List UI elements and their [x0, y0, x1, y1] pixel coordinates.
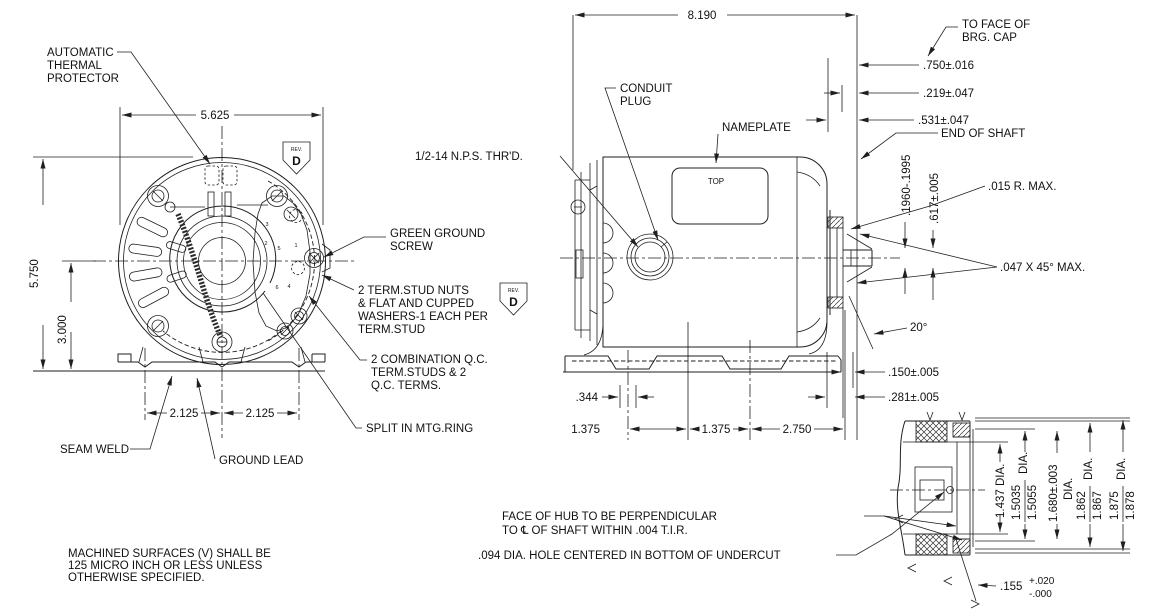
- dim-fit-diameter: 1.5035 1.5055 DIA.: [1011, 452, 1039, 522]
- note-line: MACHINED SURFACES (V) SHALL BE: [68, 548, 271, 560]
- label-seam-weld: SEAM WELD: [60, 444, 129, 456]
- dim-foot-left: 2.125: [170, 408, 199, 420]
- label-face-of-hub: FACE OF HUB TO BE PERPENDICULAR: [502, 511, 717, 523]
- terminal-bracket-side: [571, 160, 613, 345]
- label-to-face-brg-cap: BRG. CAP: [962, 32, 1017, 44]
- dim-bore: 1.437 DIA.: [995, 464, 1007, 518]
- dim-281: .281±.005: [888, 392, 939, 404]
- label-term-stud-nuts: WASHERS-1 EACH PER: [358, 311, 488, 323]
- split-mounting-ring: [170, 206, 276, 312]
- dim-foot-right: 2.125: [246, 408, 275, 420]
- dim-undercut-diameter: 1.680±.003 DIA.: [1048, 465, 1075, 522]
- detail-view: 1.437 DIA. 1.5035 1.5055 DIA. 1.680±.003…: [836, 412, 1137, 608]
- green-ground-screw: [305, 244, 331, 272]
- label-end-of-shaft: END OF SHAFT: [941, 128, 1025, 140]
- label-radius-max: .015 R. MAX.: [988, 181, 1056, 193]
- front-view: 3 2 5 1 6 4: [33, 126, 355, 438]
- dim-undercut-plus: +.020: [1029, 576, 1055, 587]
- dim-150: .150±.005: [888, 367, 939, 379]
- label-thermal-protector: AUTOMATIC: [47, 47, 114, 59]
- dim-suffix: DIA.: [1083, 458, 1095, 480]
- terminal-number: 1: [294, 243, 297, 249]
- break-line: [897, 421, 905, 555]
- thermal-protector: [165, 166, 268, 216]
- engineering-drawing-page: 3 2 5 1 6 4 5.625 5.750 3.: [0, 0, 1161, 610]
- hub-section-hatch: [916, 534, 947, 555]
- dim-suffix: DIA.: [1018, 452, 1030, 474]
- label-combination-qc: TERM.STUDS & 2: [371, 367, 466, 379]
- note-line: 125 MICRO INCH OR LESS UNLESS: [68, 560, 263, 572]
- dim-upper: 1.875: [1109, 491, 1121, 520]
- dim-flat: .1960-.1995: [901, 155, 913, 216]
- dim-lower: 1.867: [1092, 491, 1104, 520]
- terminal-number: 5: [277, 246, 280, 252]
- label-nameplate: NAMEPLATE: [722, 122, 791, 134]
- hub-section-hatch: [916, 421, 947, 442]
- dim-f3: 2.750: [783, 424, 812, 436]
- label-angle: 20°: [910, 322, 927, 334]
- label-combination-qc: 2 COMBINATION Q.C.: [371, 354, 488, 366]
- label-chamfer-max: .047 X 45° MAX.: [1000, 262, 1085, 274]
- rev-label: REV.: [291, 147, 302, 153]
- dim-617: .617±.005: [929, 173, 941, 224]
- ground-lead-braid: [178, 214, 221, 337]
- terminal-number: 3: [265, 222, 268, 228]
- label-combination-qc: Q.C. TERMS.: [371, 380, 441, 392]
- general-note: MACHINED SURFACES (V) SHALL BE 125 MICRO…: [68, 548, 271, 584]
- label-face-of-hub: TO ℄ OF SHAFT WITHIN .004 T.I.R.: [502, 525, 688, 537]
- label-term-stud-nuts: 2 TERM.STUD NUTS: [358, 285, 469, 297]
- dim-width: 5.625: [201, 110, 230, 122]
- cover-screws: [148, 186, 308, 340]
- label-split-mtg-ring: SPLIT IN MTG.RING: [366, 423, 473, 435]
- rev-letter: D: [292, 154, 301, 168]
- dim-value: 1.680±.003: [1048, 465, 1060, 522]
- label-hole-note: .094 DIA. HOLE CENTERED IN BOTTOM OF UND…: [478, 550, 781, 562]
- dim-750: .750±.016: [923, 60, 974, 72]
- dim-hub-diameter: 1.862 1.867 DIA.: [1076, 458, 1104, 522]
- dim-f1: 1.375: [571, 424, 600, 436]
- dim-suffix: DIA.: [1063, 478, 1075, 500]
- dim-outer-diameter: 1.875 1.878 DIA.: [1109, 458, 1137, 522]
- label-green-ground-screw: GREEN GROUND: [390, 228, 485, 240]
- nameplate-top-text: TOP: [708, 177, 724, 186]
- dim-344: .344: [576, 392, 599, 404]
- terminal-numbers: 3 2 5 1 6 4: [264, 222, 297, 291]
- label-thermal-protector: THERMAL: [47, 60, 103, 72]
- dim-lower: 1.5055: [1027, 485, 1039, 520]
- detail-labels: FACE OF HUB TO BE PERPENDICULAR TO ℄ OF …: [478, 511, 781, 562]
- label-term-stud-nuts: & FLAT AND CUPPED: [358, 298, 474, 310]
- terminal-number: 6: [275, 285, 278, 291]
- dim-upper: 1.5035: [1011, 485, 1023, 520]
- note-line: OTHERWISE SPECIFIED.: [68, 572, 205, 584]
- side-view: TOP: [560, 157, 900, 372]
- dim-219: .219±.047: [923, 88, 974, 100]
- label-ground-lead: GROUND LEAD: [219, 455, 303, 467]
- label-conduit-plug: PLUG: [620, 96, 651, 108]
- dim-531: .531±.047: [918, 115, 969, 127]
- dim-undercut-width: .155: [1000, 581, 1022, 593]
- mounting-base: [33, 331, 325, 371]
- terminal-number: 4: [287, 284, 290, 290]
- dim-height: 5.750: [29, 259, 41, 288]
- motor-outline-drawing: 3 2 5 1 6 4 5.625 5.750 3.: [0, 0, 1161, 610]
- dim-f2: 1.375: [702, 424, 731, 436]
- label-nps-thread: 1/2-14 N.P.S. THR'D.: [415, 151, 523, 163]
- dim-upper: 1.862: [1076, 491, 1088, 520]
- label-conduit-plug: CONDUIT: [620, 83, 672, 95]
- rev-badge: REV. D: [283, 142, 310, 174]
- label-green-ground-screw: SCREW: [390, 241, 433, 253]
- front-dimensions: 5.625 5.750 3.000 2.125 2.125: [29, 107, 323, 420]
- rev-letter: D: [509, 295, 518, 309]
- rev-label: REV.: [508, 288, 519, 294]
- label-term-stud-nuts: TERM.STUD: [358, 324, 425, 336]
- label-to-face-brg-cap: TO FACE OF: [962, 19, 1030, 31]
- dim-overall-length: 8.190: [688, 10, 717, 22]
- terminal-number: 2: [264, 241, 267, 247]
- conduit-plug: [627, 234, 673, 280]
- side-dimensions: 8.190 .750±.016 .219±.047 .531±.047 .196…: [571, 10, 974, 440]
- shaft-hub: [828, 210, 872, 315]
- label-thermal-protector: PROTECTOR: [47, 73, 119, 85]
- front-labels: AUTOMATIC THERMAL PROTECTOR SEAM WELD GR…: [47, 47, 488, 467]
- dim-suffix: DIA.: [1116, 458, 1128, 480]
- dim-center-height: 3.000: [57, 315, 69, 344]
- dim-undercut-minus: -.000: [1029, 589, 1052, 600]
- rev-badge: REV. D: [500, 283, 527, 315]
- dim-lower: 1.878: [1125, 491, 1137, 520]
